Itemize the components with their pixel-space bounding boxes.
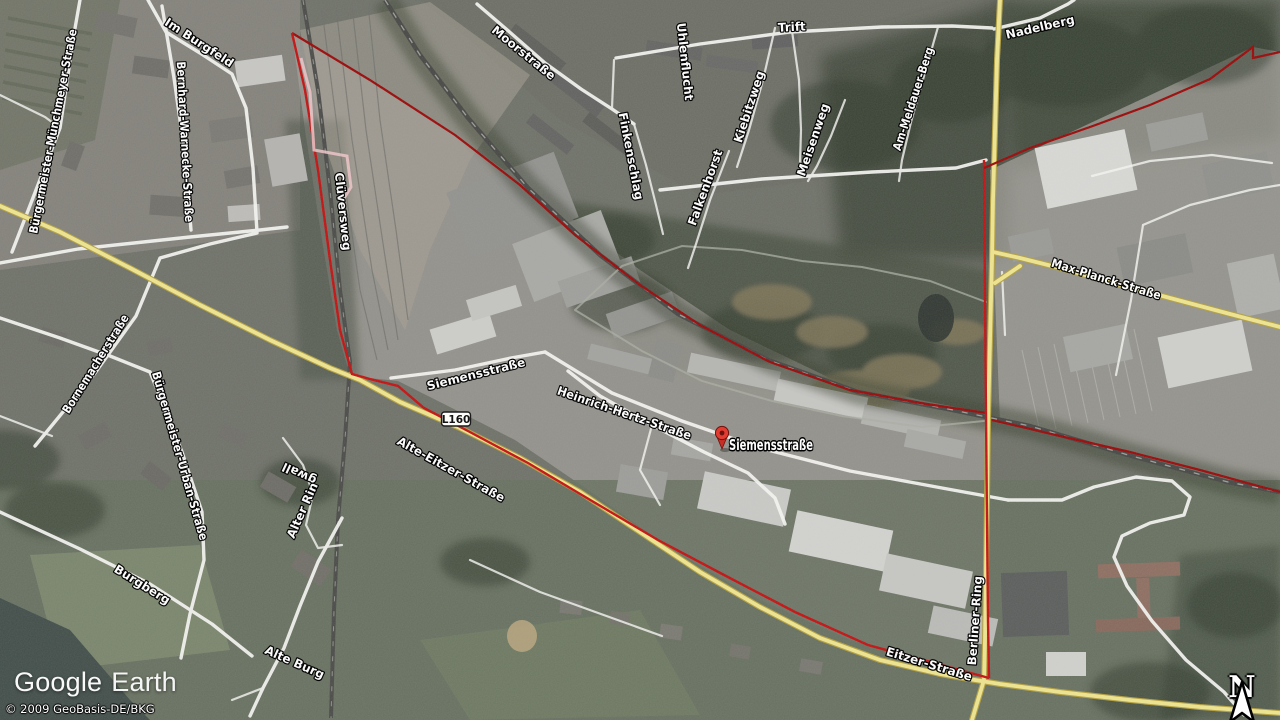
placemark-label: Siemensstraße [729,436,813,454]
road-shield-label: L160 [442,414,471,426]
logo-word-google: Google [14,667,102,697]
photo-grain [0,0,1280,720]
street-label-trift: Trift [778,19,807,34]
compass-north-indicator[interactable]: N [1220,680,1264,702]
copyright-attribution: © 2009 GeoBasis-DE/BKG [5,702,155,716]
logo-word-earth: Earth [111,667,177,697]
google-earth-window: Bürgermeister-Münchmeyer-StraßeIm Burgfe… [0,0,1280,720]
road-shield-l160: L160 [442,412,471,426]
google-earth-logo: GoogleEarth [14,667,177,698]
north-arrow-icon [1220,680,1264,720]
satellite-map[interactable]: Bürgermeister-Münchmeyer-StraßeIm Burgfe… [0,0,1280,720]
